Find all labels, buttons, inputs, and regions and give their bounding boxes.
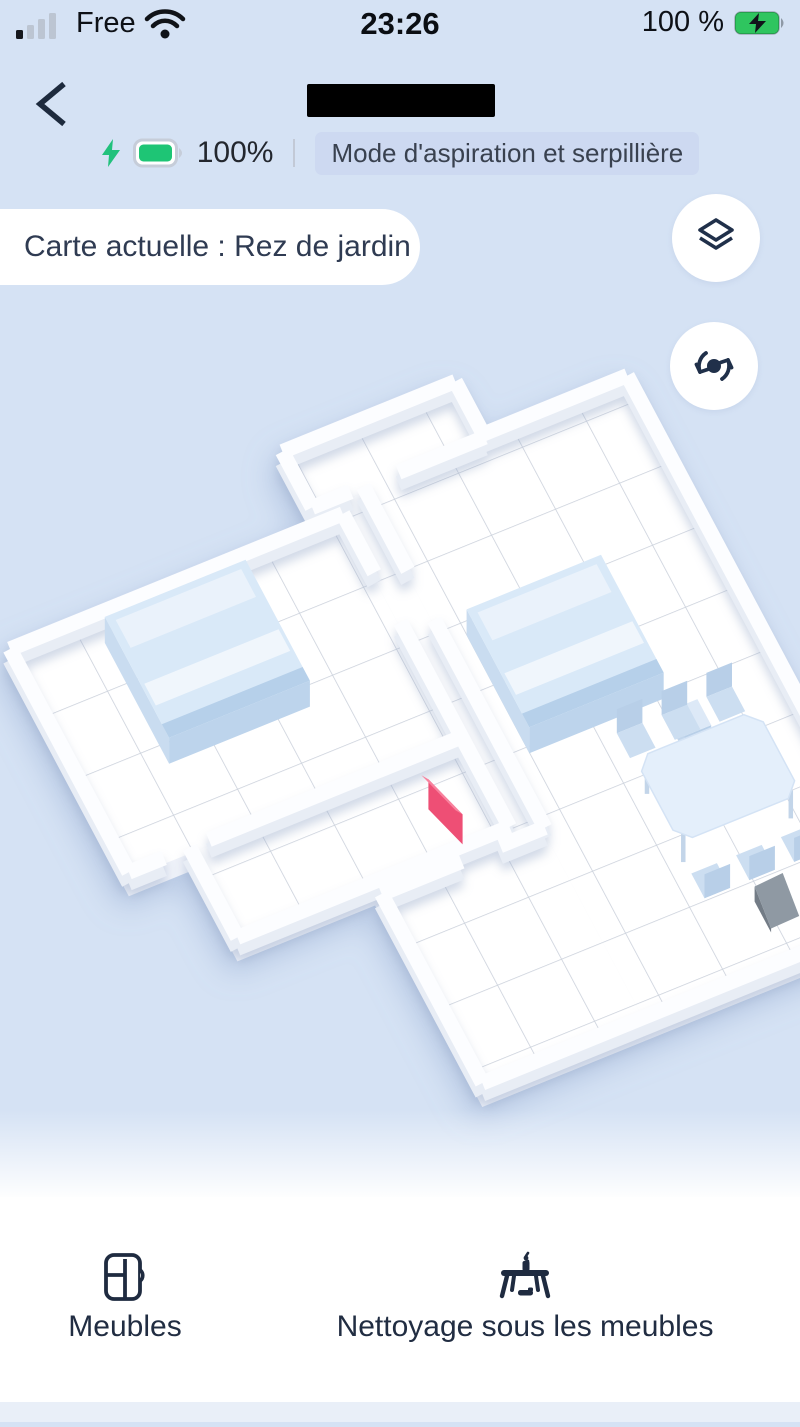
battery-charging-icon xyxy=(734,10,786,36)
home-indicator-area xyxy=(0,1402,800,1422)
clean-under-furniture-label: Nettoyage sous les meubles xyxy=(337,1310,714,1344)
robot-battery-label: 100% xyxy=(197,136,274,170)
map-layers-button[interactable] xyxy=(672,194,760,282)
clean-under-furniture-button[interactable]: Nettoyage sous les meubles xyxy=(295,1250,755,1344)
charging-bolt-icon xyxy=(101,138,121,168)
layers-icon xyxy=(690,212,742,264)
robot-battery-icon xyxy=(133,138,185,168)
device-name-redacted xyxy=(307,84,495,117)
current-map-label: Carte actuelle : Rez de jardin xyxy=(24,230,411,264)
rotate-map-button[interactable] xyxy=(670,322,758,410)
furniture-icon xyxy=(99,1250,151,1304)
status-bar: Free 23:26 100 % xyxy=(0,0,800,46)
current-map-pill: Carte actuelle : Rez de jardin xyxy=(0,209,420,285)
rotate-icon xyxy=(686,338,742,394)
battery-percent-label: 100 % xyxy=(642,6,724,39)
divider xyxy=(293,139,295,167)
clean-under-furniture-icon xyxy=(497,1250,553,1304)
furniture-label: Meubles xyxy=(68,1310,181,1344)
robot-status-row: 100% Mode d'aspiration et serpillière xyxy=(0,130,800,176)
mode-badge: Mode d'aspiration et serpillière xyxy=(315,132,699,175)
back-button[interactable] xyxy=(30,78,74,130)
map-bottom-fade xyxy=(0,1110,800,1200)
